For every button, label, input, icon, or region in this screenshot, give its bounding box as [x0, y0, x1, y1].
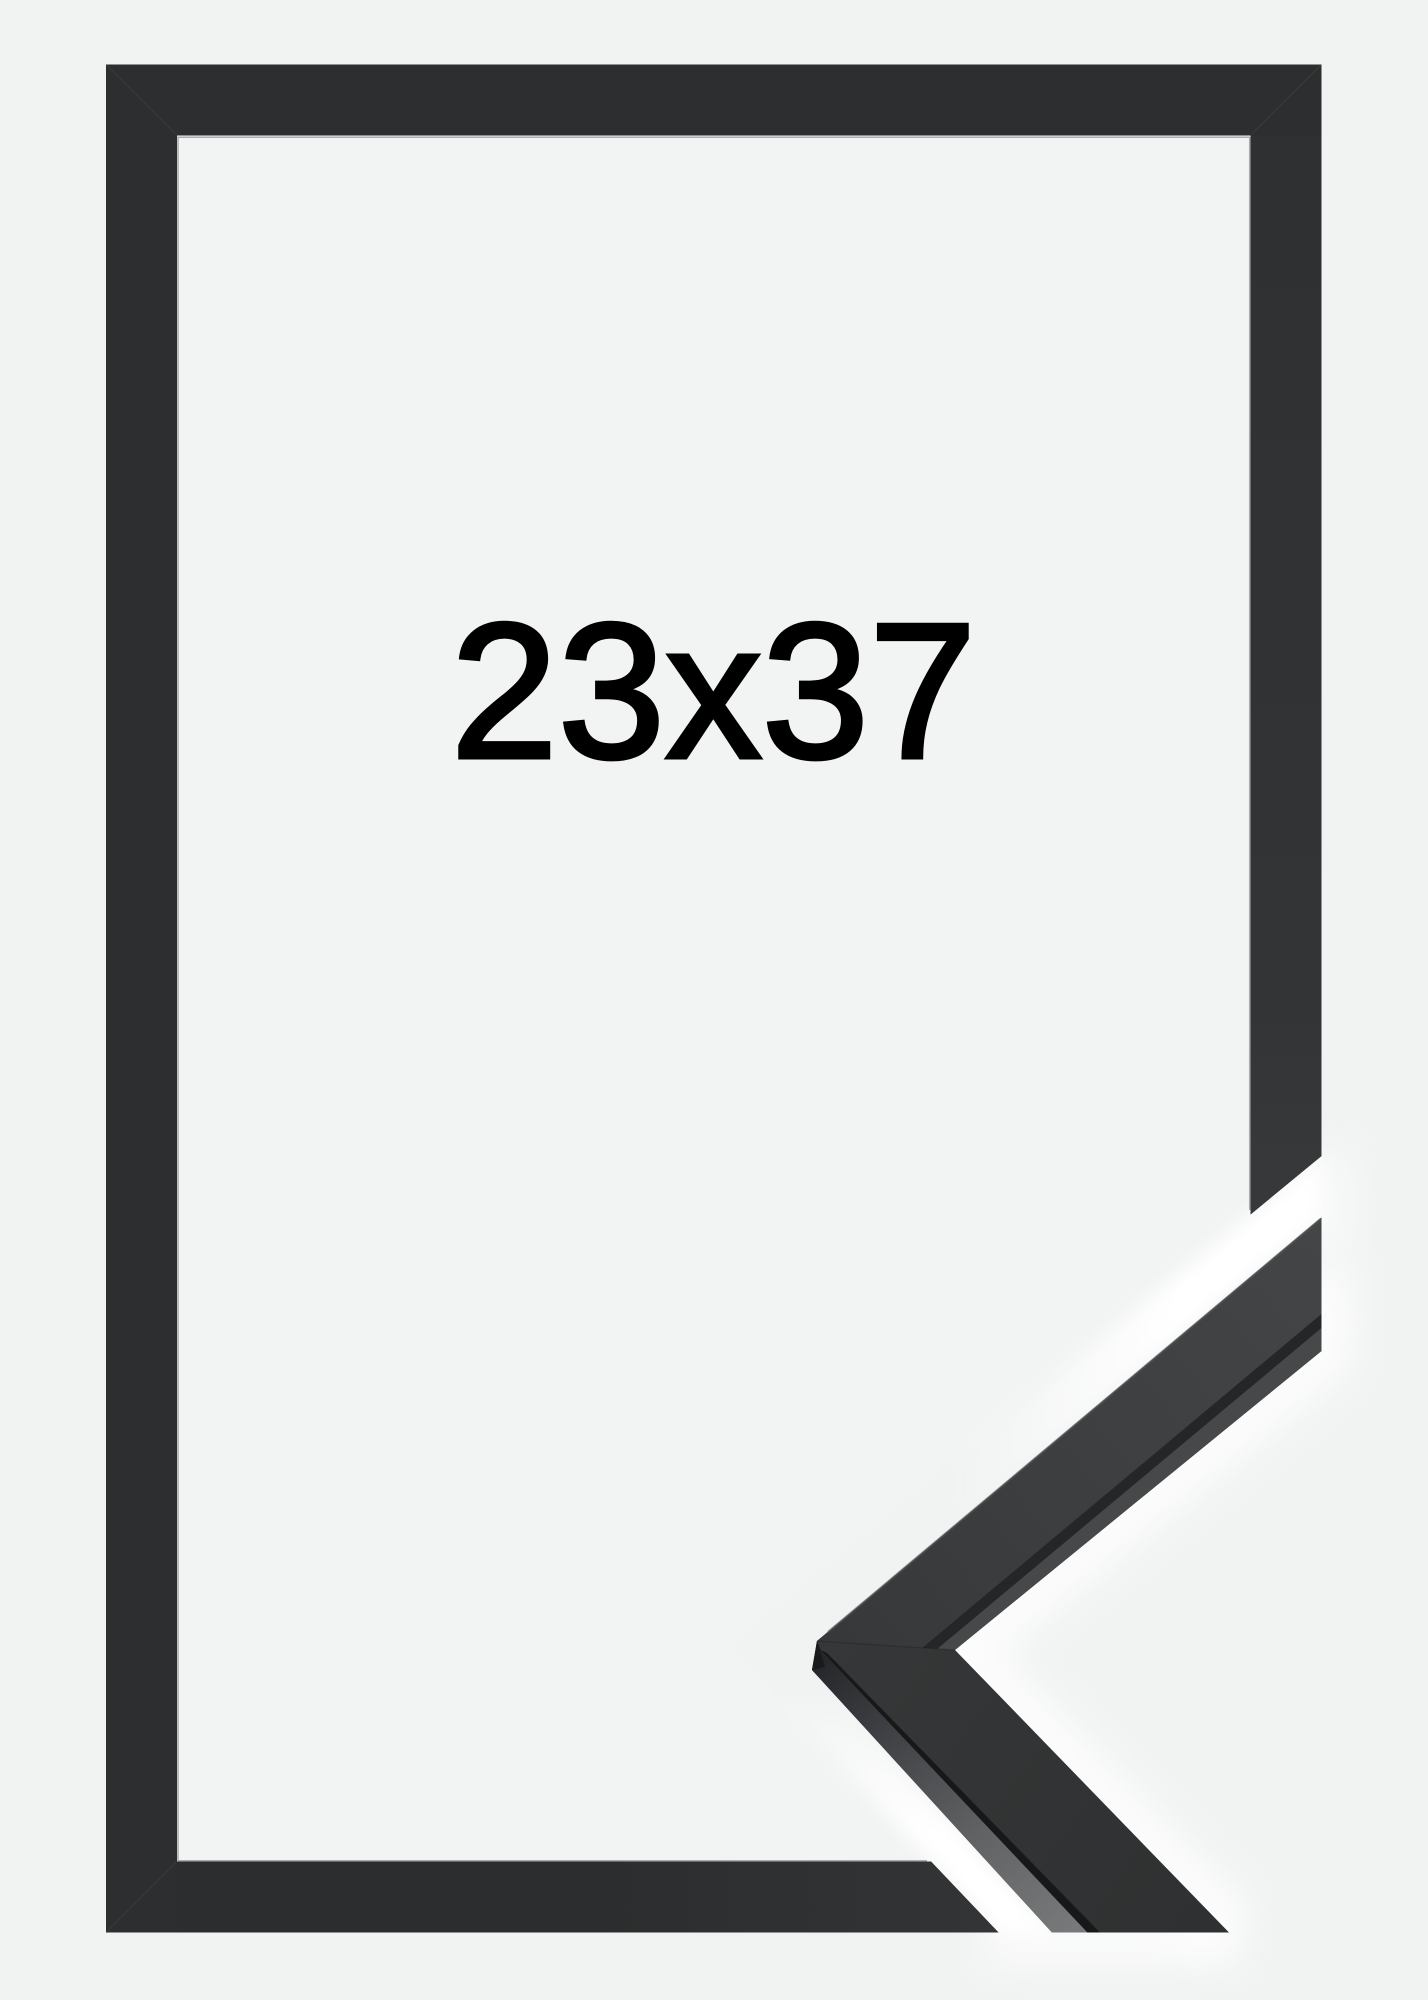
svg-text:23x37: 23x37	[451, 583, 977, 799]
